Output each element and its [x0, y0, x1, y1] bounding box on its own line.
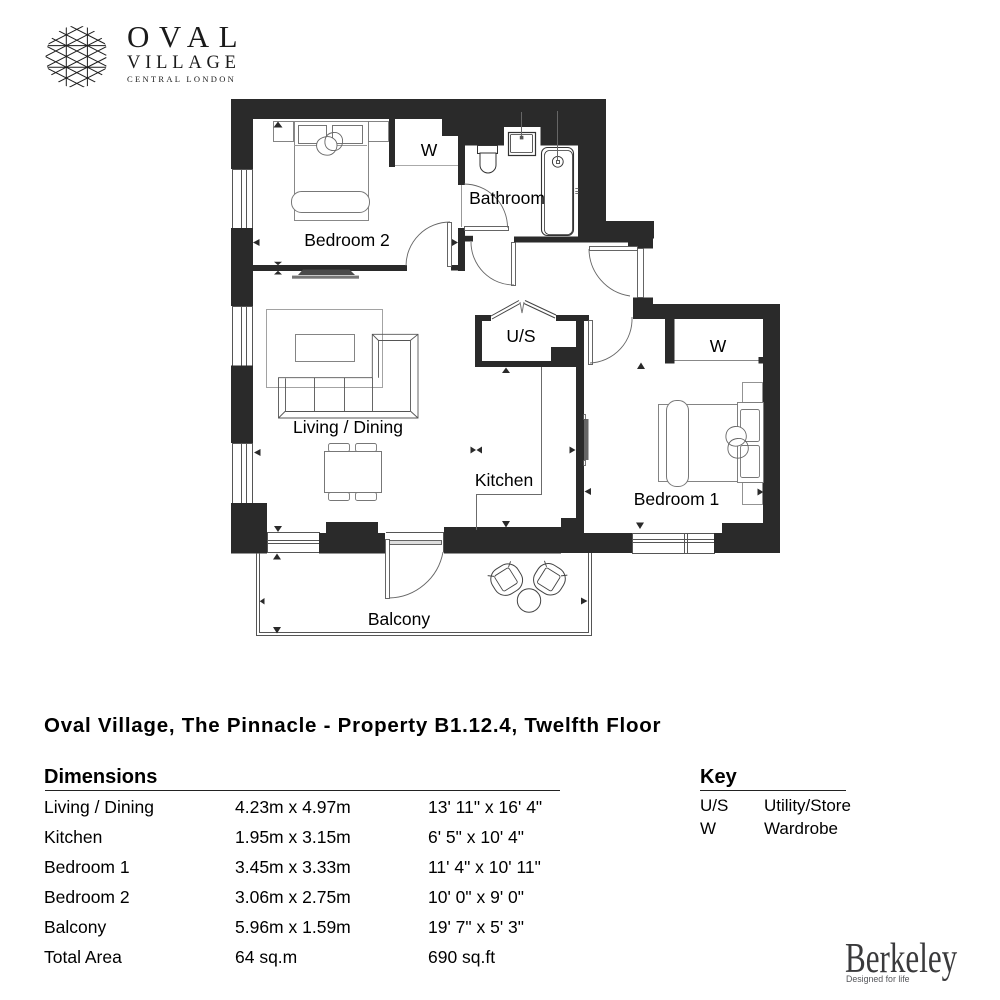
svg-text:CENTRAL LONDON: CENTRAL LONDON [127, 74, 236, 84]
svg-text:W: W [421, 140, 438, 160]
svg-text:VILLAGE: VILLAGE [127, 53, 241, 73]
svg-text:Kitchen: Kitchen [475, 470, 533, 490]
svg-text:Bathroom: Bathroom [469, 188, 545, 208]
svg-text:OVAL: OVAL [127, 19, 247, 54]
svg-text:Living / Dining: Living / Dining [293, 417, 403, 437]
svg-text:Balcony: Balcony [368, 609, 431, 629]
svg-text:Bedroom 1: Bedroom 1 [634, 489, 720, 509]
svg-text:U/S: U/S [506, 326, 535, 346]
svg-text:W: W [710, 336, 727, 356]
svg-text:Bedroom 2: Bedroom 2 [304, 230, 390, 250]
